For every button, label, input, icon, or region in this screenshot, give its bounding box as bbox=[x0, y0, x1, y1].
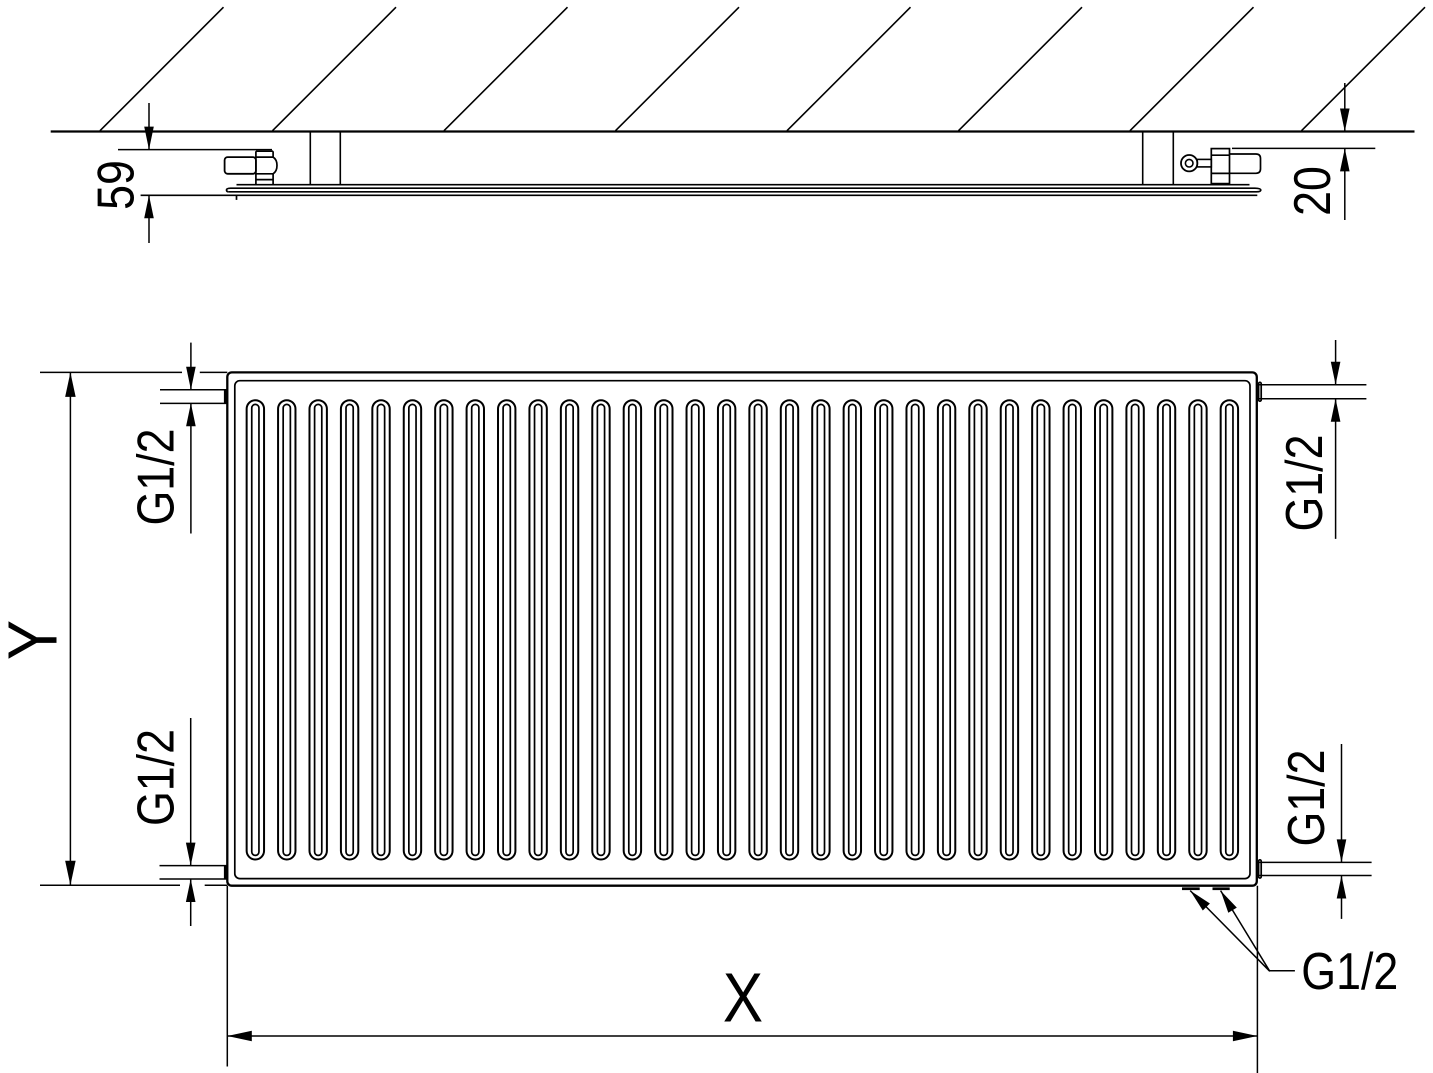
svg-text:X: X bbox=[723, 958, 763, 1036]
svg-text:G1/2: G1/2 bbox=[1301, 943, 1398, 1001]
svg-text:Y: Y bbox=[0, 620, 72, 660]
svg-text:G1/2: G1/2 bbox=[127, 429, 185, 526]
svg-text:G1/2: G1/2 bbox=[1278, 750, 1336, 847]
svg-text:20: 20 bbox=[1284, 166, 1342, 216]
svg-text:G1/2: G1/2 bbox=[1276, 435, 1334, 532]
svg-text:G1/2: G1/2 bbox=[127, 729, 185, 826]
svg-text:59: 59 bbox=[87, 160, 145, 210]
